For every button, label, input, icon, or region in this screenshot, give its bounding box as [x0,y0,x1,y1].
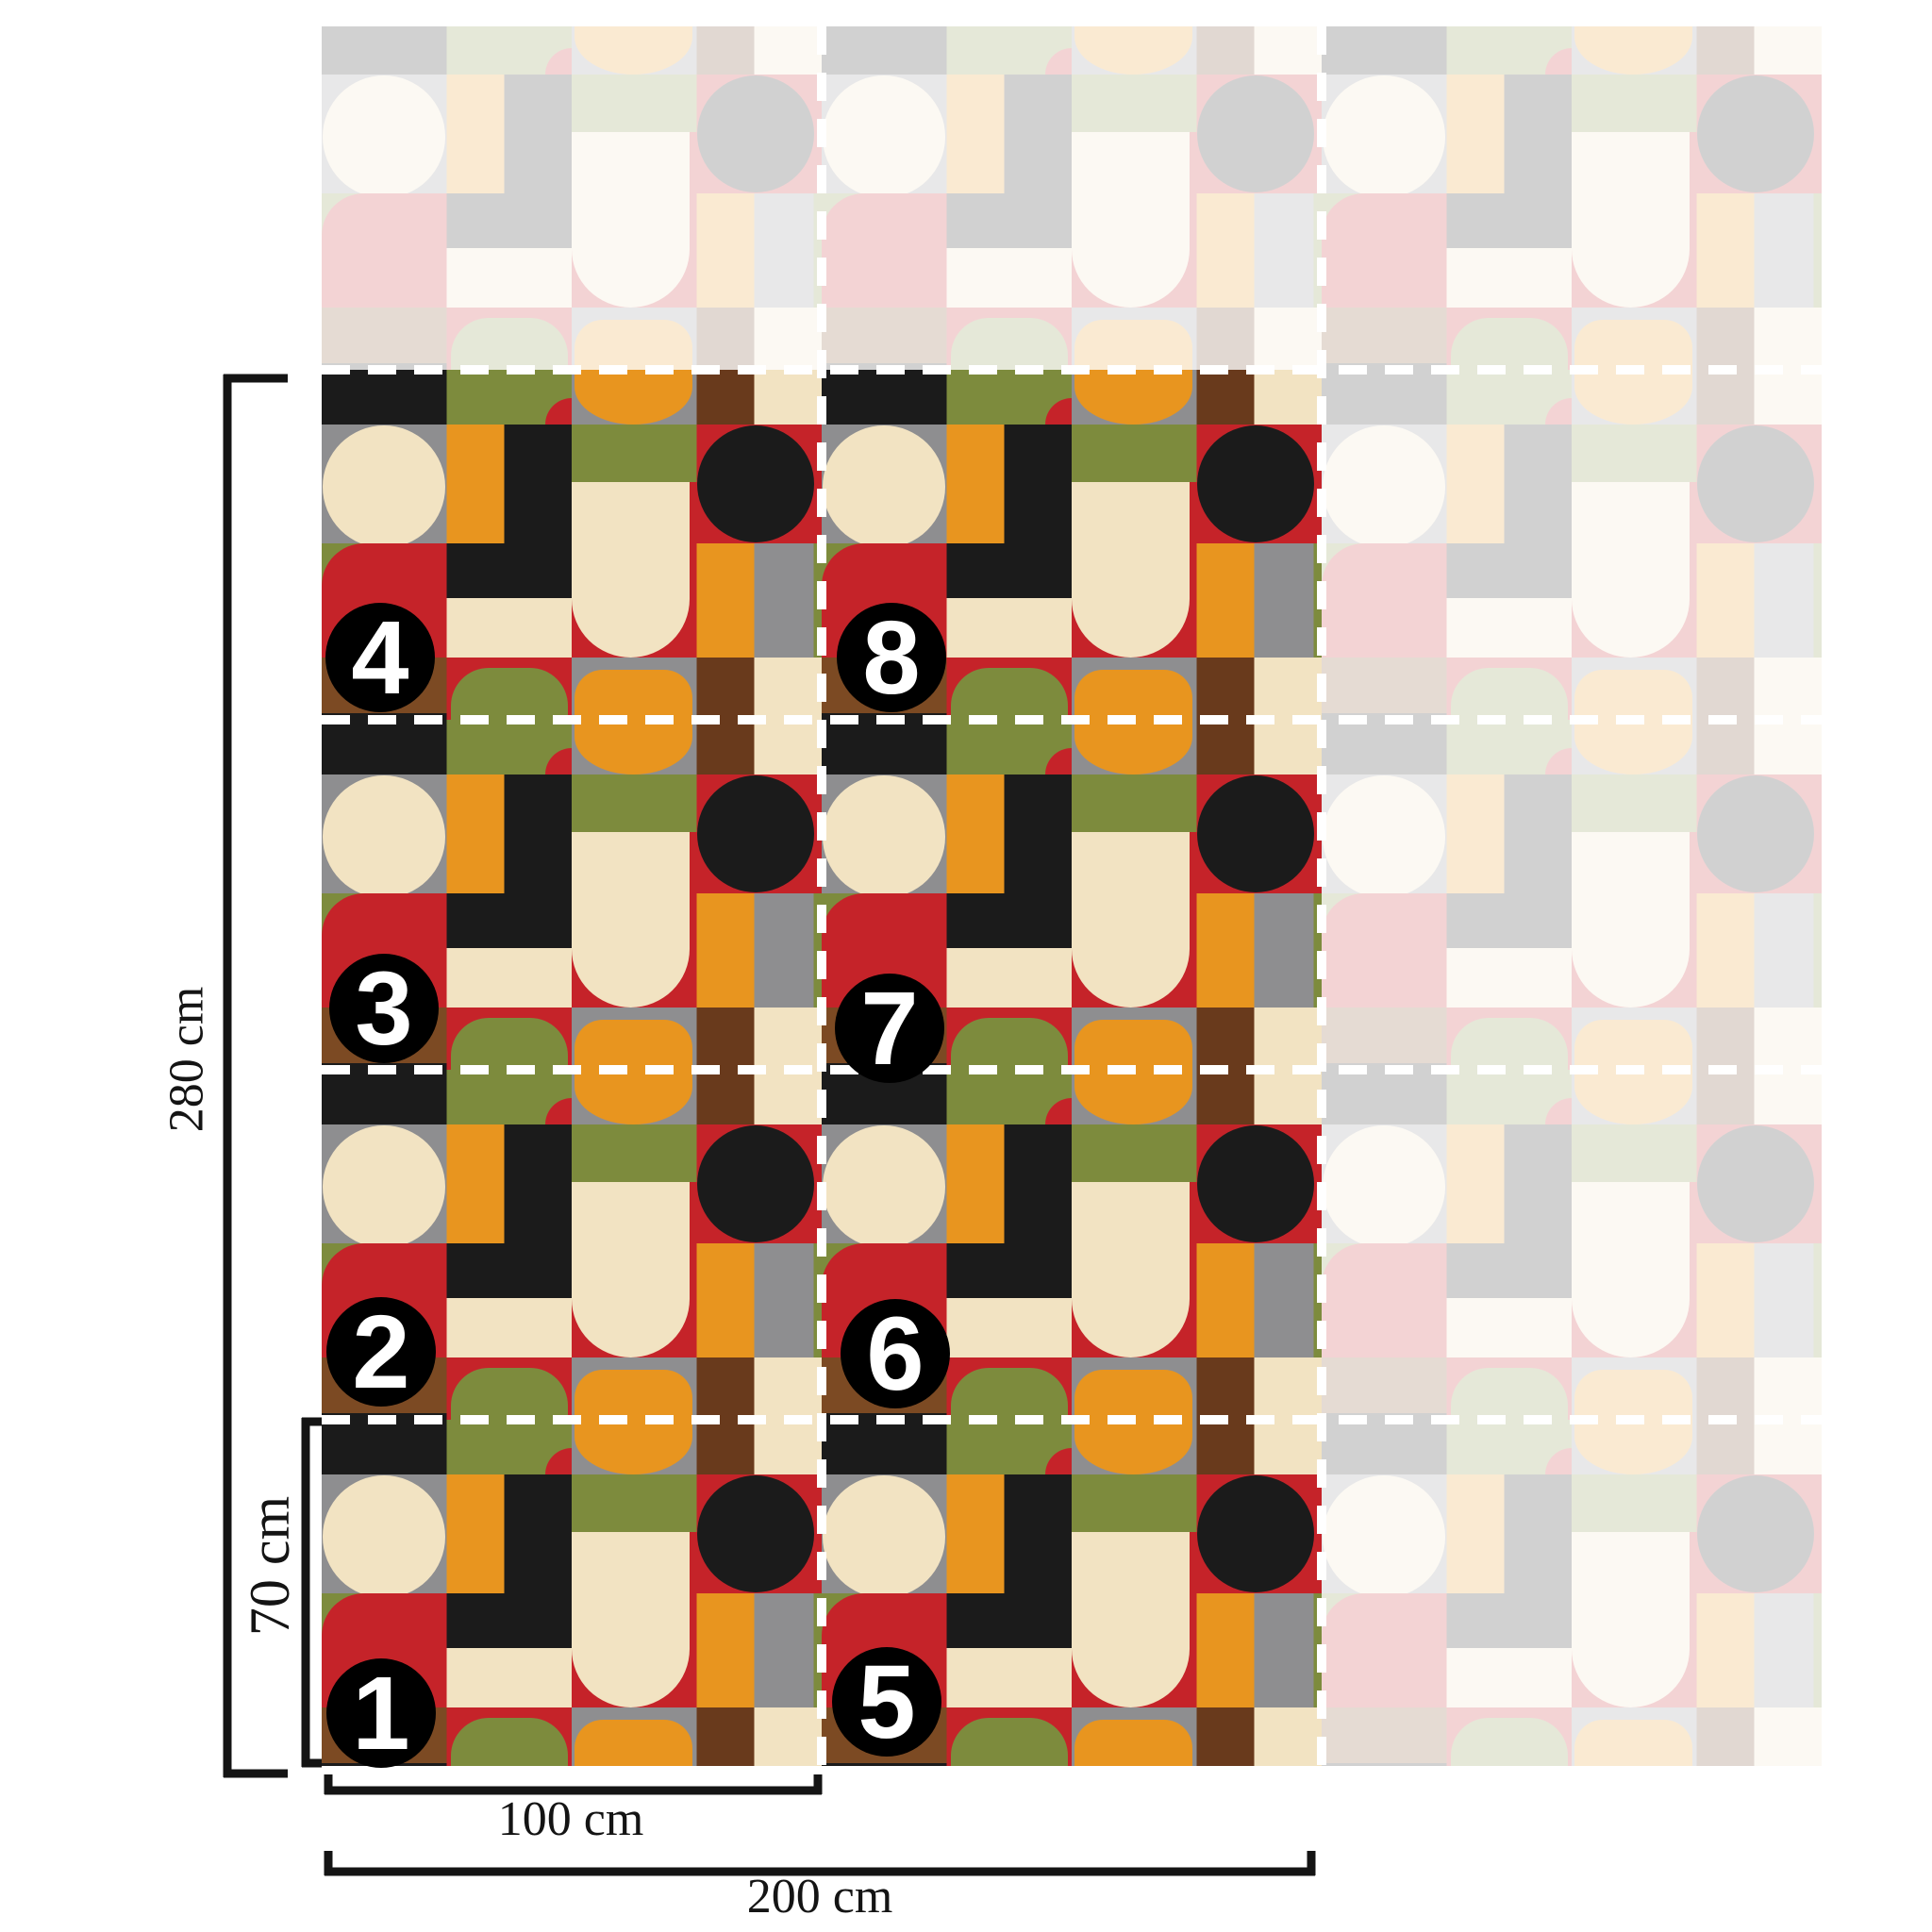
svg-text:280 cm: 280 cm [160,987,214,1133]
svg-text:70 cm: 70 cm [239,1496,301,1636]
svg-text:8: 8 [862,600,920,716]
svg-text:5: 5 [858,1644,915,1760]
svg-text:100 cm: 100 cm [498,1792,644,1846]
svg-text:4: 4 [351,600,408,716]
svg-text:6: 6 [866,1296,924,1412]
svg-text:1: 1 [352,1656,409,1772]
svg-text:2: 2 [352,1294,409,1410]
svg-text:3: 3 [355,951,412,1067]
svg-text:7: 7 [860,971,918,1087]
svg-text:200 cm: 200 cm [747,1870,893,1924]
